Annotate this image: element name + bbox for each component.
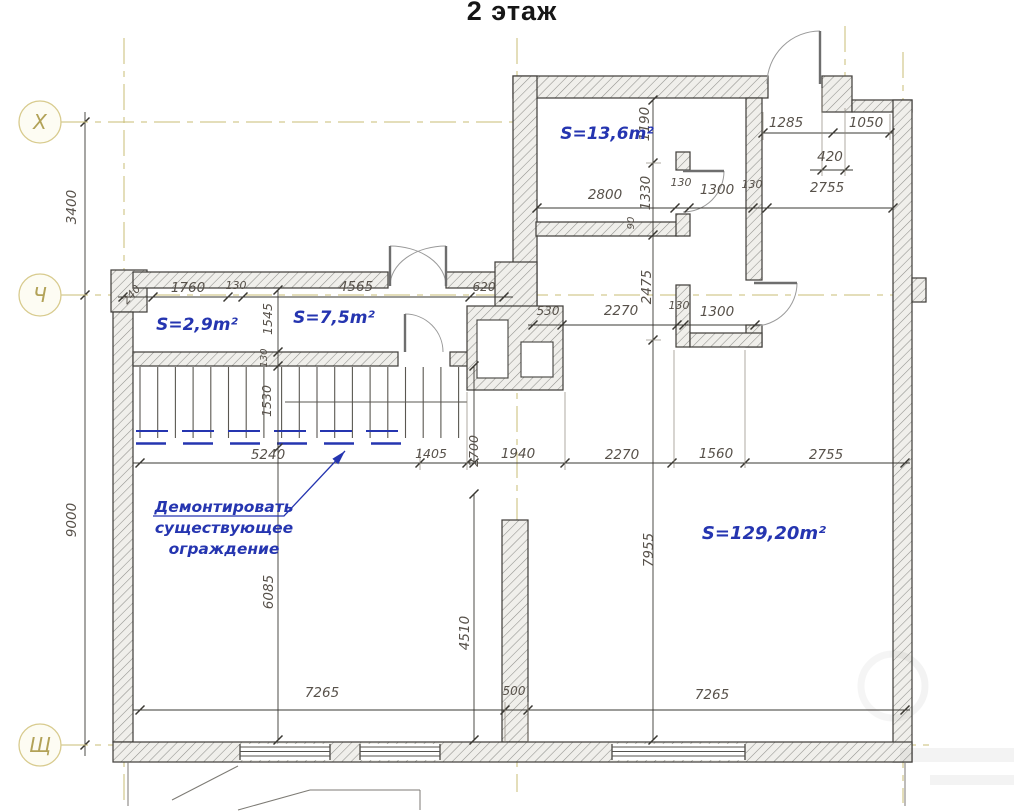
dimension-label: 130 xyxy=(259,348,270,367)
dimension-label: 1300 xyxy=(700,304,734,320)
demolition-note-line: ограждение xyxy=(169,540,280,558)
door-swing-arc xyxy=(767,31,820,84)
dimension-label: 4565 xyxy=(339,279,373,295)
wall-segment xyxy=(676,214,690,236)
dimension-label: 90 xyxy=(626,217,637,230)
dimension-label: 1285 xyxy=(769,115,803,131)
wall-segment xyxy=(113,312,133,742)
wall-segment xyxy=(495,262,537,310)
room-area-label: S=129,20m² xyxy=(702,523,826,544)
wall-segment xyxy=(690,333,762,347)
exterior-outline xyxy=(238,790,310,810)
stairs-layer xyxy=(136,367,467,444)
wall-segment xyxy=(113,742,912,762)
wall-segment xyxy=(822,76,852,112)
dimension-label: 1560 xyxy=(699,446,733,462)
dimension-lines-layer xyxy=(81,88,911,756)
dimension-label: 1300 xyxy=(700,182,734,198)
door-swing-arc xyxy=(405,314,443,352)
dimension-label: 130 xyxy=(671,176,692,189)
dimension-label: 7955 xyxy=(641,533,657,567)
dimension-label: 130 xyxy=(742,178,763,191)
dimension-label: 2270 xyxy=(605,447,639,463)
dimension-label: 3400 xyxy=(64,190,80,224)
dimension-label: 1050 xyxy=(849,115,883,131)
dimension-label: 9000 xyxy=(64,503,80,537)
exterior-details-layer xyxy=(128,654,1014,810)
dimension-label: 1405 xyxy=(415,446,447,461)
room-area-label: S=7,5m² xyxy=(293,308,375,328)
annotation-layer: Демонтироватьсуществующееограждение xyxy=(153,451,345,558)
dimension-label: 130 xyxy=(226,279,247,292)
door-swing-arc xyxy=(754,283,797,326)
axis-bubble-label: Щ xyxy=(29,733,51,757)
grid-axes-layer xyxy=(62,26,930,803)
dimension-label: 4510 xyxy=(457,616,473,650)
demolition-note-line: Демонтировать xyxy=(154,498,294,516)
floor-plan-page: 2 этаж 128510504202800130130013027552401… xyxy=(0,0,1024,811)
dimension-label: 7265 xyxy=(305,685,339,701)
door-swing-arc xyxy=(390,246,446,286)
axis-bubble-label: Ч xyxy=(33,283,47,307)
floor-plan-svg: 1285105042028001301300130275524017601304… xyxy=(0,0,1024,811)
walls-layer xyxy=(111,76,926,762)
dimension-label: 2755 xyxy=(810,180,844,196)
dimension-label: 1940 xyxy=(501,446,535,462)
demolition-note-line: существующее xyxy=(155,519,293,537)
wall-segment xyxy=(893,100,912,762)
wall-segment xyxy=(513,76,768,98)
shaft-opening xyxy=(521,342,553,377)
dimension-label: 130 xyxy=(669,299,690,312)
dimension-label: 2475 xyxy=(639,270,655,304)
wall-segment xyxy=(912,278,926,302)
door-swing-arc xyxy=(390,246,446,286)
dimension-label: 7265 xyxy=(695,687,729,703)
wall-segment xyxy=(676,285,690,347)
shaft-opening xyxy=(477,320,508,378)
wall-segment xyxy=(676,152,690,170)
room-area-label: S=13,6m² xyxy=(560,124,654,144)
dimension-label: 420 xyxy=(817,149,843,165)
dimension-label: 620 xyxy=(473,280,496,294)
dimension-label: 1530 xyxy=(259,385,274,417)
dimension-label: 5240 xyxy=(251,447,285,463)
dimension-label: 1545 xyxy=(260,303,275,335)
dimension-label: 2270 xyxy=(604,303,638,319)
dimension-label: 1330 xyxy=(638,176,654,210)
dimension-label: 2755 xyxy=(809,447,843,463)
dimension-label: 500 xyxy=(503,684,526,698)
wall-segment xyxy=(536,222,678,236)
dimension-label: 6085 xyxy=(261,575,277,609)
dimension-label: 2700 xyxy=(466,435,481,467)
dimension-label: 1760 xyxy=(171,280,205,296)
dimension-label: 2800 xyxy=(588,187,622,203)
room-area-label: S=2,9m² xyxy=(156,315,238,335)
axis-bubble-label: Х xyxy=(32,110,48,134)
dimension-label: 530 xyxy=(537,304,560,318)
exterior-outline xyxy=(172,766,238,800)
